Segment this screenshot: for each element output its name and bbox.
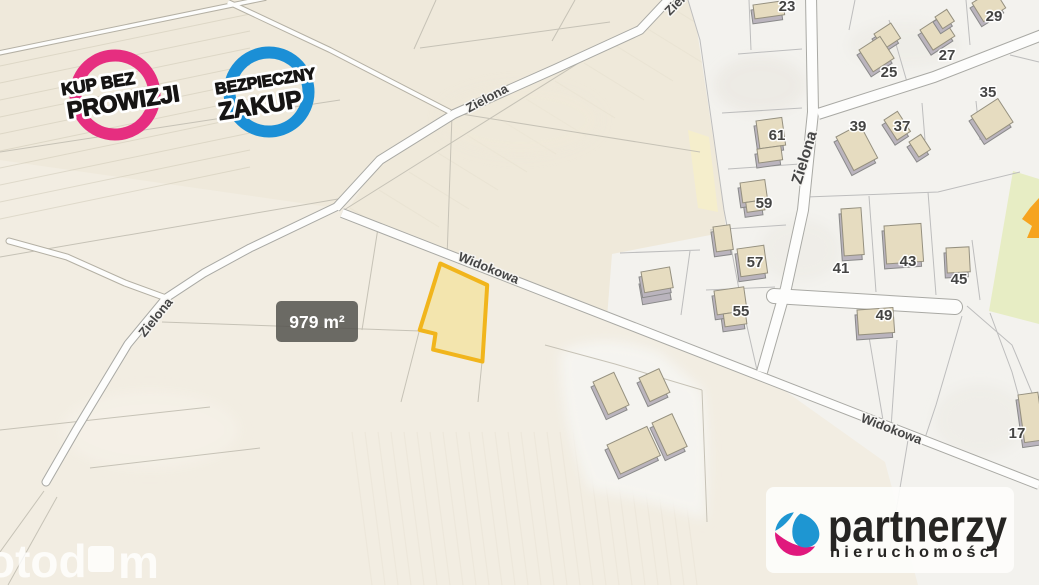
svg-text:23: 23: [779, 0, 796, 15]
svg-text:57: 57: [747, 254, 764, 271]
svg-text:979 m²: 979 m²: [289, 312, 345, 332]
svg-text:25: 25: [881, 64, 898, 81]
svg-text:17: 17: [1009, 425, 1026, 442]
svg-text:otod: otod: [0, 535, 87, 585]
svg-text:m: m: [118, 536, 159, 585]
svg-text:29: 29: [986, 8, 1003, 25]
svg-text:59: 59: [756, 195, 773, 212]
svg-text:45: 45: [951, 271, 968, 288]
svg-text:55: 55: [733, 303, 750, 320]
svg-text:43: 43: [900, 253, 917, 270]
svg-text:61: 61: [769, 127, 786, 144]
svg-text:39: 39: [850, 118, 867, 135]
svg-text:27: 27: [939, 47, 956, 64]
svg-text:35: 35: [980, 84, 997, 101]
svg-text:41: 41: [833, 260, 850, 277]
svg-text:nieruchomości: nieruchomości: [830, 544, 1002, 561]
svg-text:37: 37: [894, 118, 911, 135]
svg-text:49: 49: [876, 307, 893, 324]
